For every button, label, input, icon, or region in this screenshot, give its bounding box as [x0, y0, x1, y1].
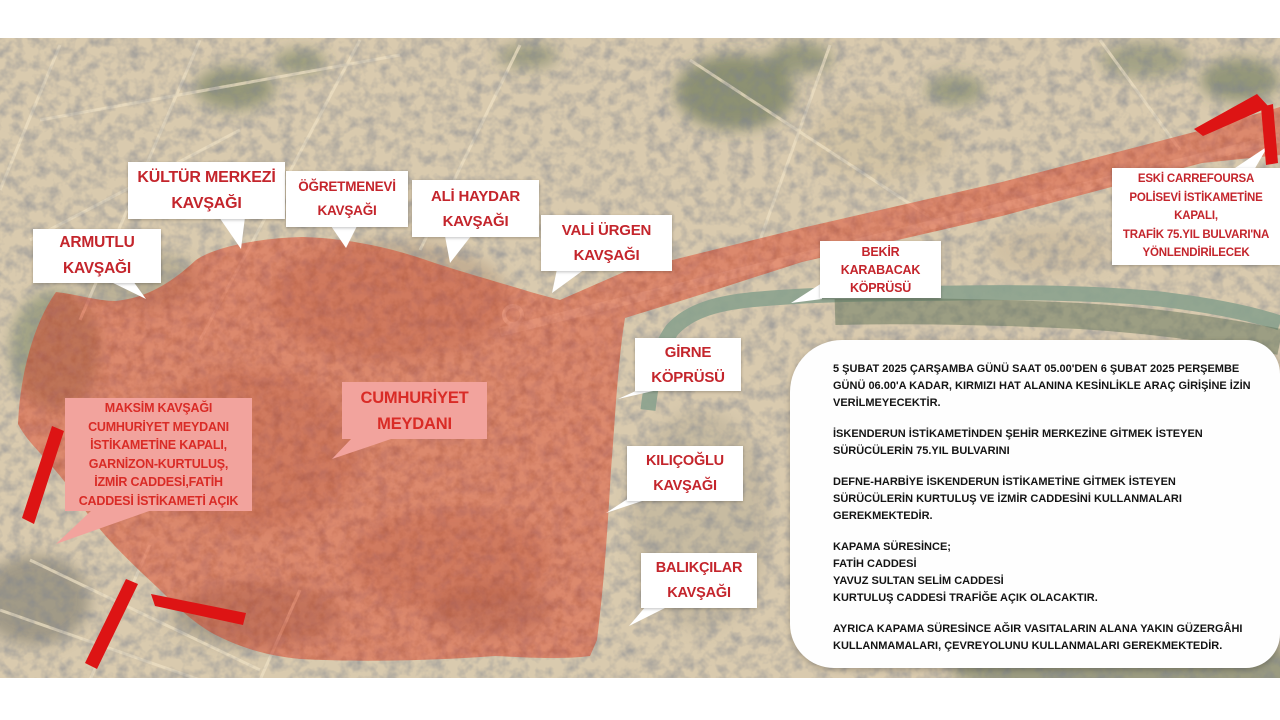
note-maksim-kavsagi: MAKSİM KAVŞAĞI CUMHURİYET MEYDANI İSTİKA…: [65, 398, 252, 511]
announcement-paragraph: AYRICA KAPAMA SÜRESİNCE AĞIR VASITALARIN…: [833, 621, 1258, 655]
callout-girne-koprusu: GİRNE KÖPRÜSÜ: [635, 338, 741, 391]
callout-kultur-merkezi-kavsagi: KÜLTÜR MERKEZİ KAVŞAĞI: [128, 162, 285, 219]
announcement-paragraph: KAPAMA SÜRESİNCE; FATİH CADDESİ YAVUZ SU…: [833, 539, 1258, 607]
announcement-paragraph: İSKENDERUN İSTİKAMETİNDEN ŞEHİR MERKEZİN…: [833, 426, 1258, 460]
callout-balikcilar-kavsagi: BALIKÇILAR KAVŞAĞI: [641, 553, 757, 608]
announcement-paragraph: DEFNE-HARBİYE İSKENDERUN İSTİKAMETİNE Gİ…: [833, 474, 1258, 525]
announcement-paragraph: 5 ŞUBAT 2025 ÇARŞAMBA GÜNÜ SAAT 05.00'DE…: [833, 361, 1258, 412]
note-cumhuriyet-meydani: CUMHURİYET MEYDANI: [342, 382, 487, 439]
announcement-panel: 5 ŞUBAT 2025 ÇARŞAMBA GÜNÜ SAAT 05.00'DE…: [790, 340, 1280, 668]
callout-vali-urgen-kavsagi: VALİ ÜRGEN KAVŞAĞI: [541, 215, 672, 271]
callout-ali-haydar-kavsagi: ALİ HAYDAR KAVŞAĞI: [412, 180, 539, 237]
callout-eski-carrefoursa-note: ESKİ CARREFOURSA POLİSEVİ İSTİKAMETİNE K…: [1112, 168, 1280, 265]
callout-armutlu-kavsagi: ARMUTLU KAVŞAĞI: [33, 229, 161, 283]
road-closure-map: ARMUTLU KAVŞAĞI KÜLTÜR MERKEZİ KAVŞAĞI Ö…: [0, 0, 1280, 720]
callout-ogretmenevi-kavsagi: ÖĞRETMENEVİ KAVŞAĞI: [286, 171, 408, 227]
callout-kilicoglu-kavsagi: KILIÇOĞLU KAVŞAĞI: [627, 446, 743, 501]
callout-bekir-karabacak-koprusu: BEKİR KARABACAK KÖPRÜSÜ: [820, 241, 941, 298]
